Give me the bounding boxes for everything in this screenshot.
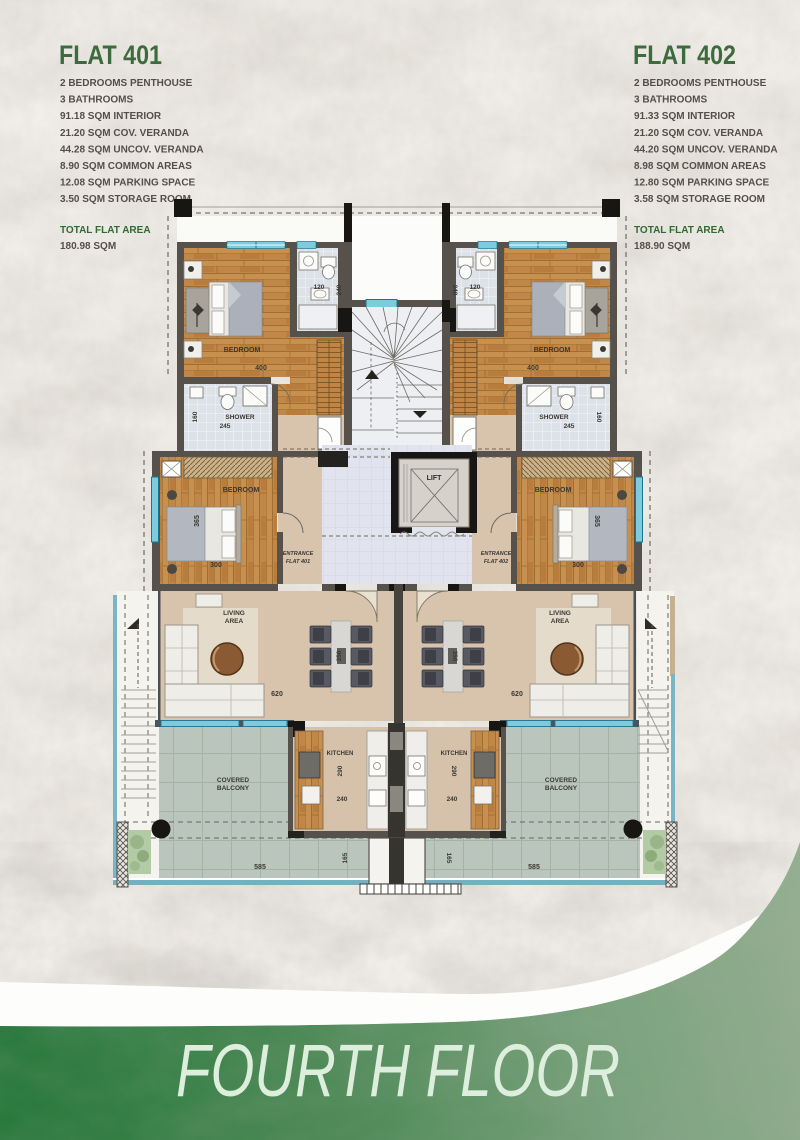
svg-text:240: 240 (451, 285, 458, 296)
svg-text:FLAT 402: FLAT 402 (633, 40, 736, 70)
svg-text:160: 160 (192, 411, 199, 422)
svg-text:AREA: AREA (225, 618, 244, 625)
svg-text:240: 240 (337, 796, 348, 803)
svg-text:585: 585 (254, 864, 266, 871)
svg-text:188.90 SQM: 188.90 SQM (634, 241, 690, 252)
svg-text:COVERED: COVERED (545, 777, 577, 784)
svg-text:245: 245 (564, 423, 575, 430)
svg-text:FLAT 401: FLAT 401 (59, 40, 162, 70)
svg-text:120: 120 (470, 284, 481, 291)
svg-text:AREA: AREA (551, 618, 570, 625)
svg-text:3.58 SQM STORAGE ROOM: 3.58 SQM STORAGE ROOM (634, 194, 765, 205)
svg-text:KITCHEN: KITCHEN (327, 751, 354, 757)
svg-text:21.20 SQM COV. VERANDA: 21.20 SQM COV. VERANDA (634, 128, 763, 139)
svg-text:BEDROOM: BEDROOM (223, 487, 260, 494)
svg-text:8.98 SQM COMMON AREAS: 8.98 SQM COMMON AREAS (634, 161, 766, 172)
svg-text:COVERED: COVERED (217, 777, 249, 784)
svg-text:300: 300 (572, 562, 584, 569)
svg-text:LIVING: LIVING (223, 610, 245, 617)
svg-text:TOTAL FLAT AREA: TOTAL FLAT AREA (634, 225, 725, 236)
svg-text:365: 365 (194, 515, 201, 527)
svg-text:BEDROOM: BEDROOM (224, 347, 261, 354)
svg-text:8.90 SQM COMMON AREAS: 8.90 SQM COMMON AREAS (60, 161, 192, 172)
svg-text:2 BEDROOMS PENTHOUSE: 2 BEDROOMS PENTHOUSE (634, 78, 767, 89)
svg-text:44.20 SQM UNCOV. VERANDA: 44.20 SQM UNCOV. VERANDA (634, 144, 778, 155)
svg-text:365: 365 (593, 515, 600, 527)
svg-text:KITCHEN: KITCHEN (441, 751, 468, 757)
svg-text:BALCONY: BALCONY (217, 785, 250, 792)
svg-text:245: 245 (220, 423, 231, 430)
svg-text:240: 240 (336, 284, 343, 295)
svg-text:620: 620 (511, 691, 523, 698)
svg-text:21.20 SQM COV. VERANDA: 21.20 SQM COV. VERANDA (60, 128, 189, 139)
svg-text:BEDROOM: BEDROOM (534, 347, 571, 354)
svg-text:91.18 SQM INTERIOR: 91.18 SQM INTERIOR (60, 111, 162, 122)
svg-text:160: 160 (595, 412, 602, 423)
svg-text:3.50 SQM STORAGE ROOM: 3.50 SQM STORAGE ROOM (60, 194, 191, 205)
svg-text:240: 240 (447, 796, 458, 803)
svg-text:44.28 SQM UNCOV. VERANDA: 44.28 SQM UNCOV. VERANDA (60, 144, 204, 155)
svg-text:3 BATHROOMS: 3 BATHROOMS (634, 95, 707, 106)
svg-text:91.33 SQM INTERIOR: 91.33 SQM INTERIOR (634, 111, 736, 122)
svg-text:120: 120 (314, 284, 325, 291)
svg-text:ENTRANCE: ENTRANCE (283, 551, 314, 557)
svg-text:SHOWER: SHOWER (539, 414, 569, 421)
svg-text:12.80 SQM PARKING SPACE: 12.80 SQM PARKING SPACE (634, 178, 770, 189)
svg-text:BALCONY: BALCONY (545, 785, 578, 792)
svg-text:400: 400 (255, 365, 267, 372)
svg-text:12.08 SQM PARKING SPACE: 12.08 SQM PARKING SPACE (60, 178, 196, 189)
svg-text:FLAT 401: FLAT 401 (286, 559, 310, 565)
svg-text:LIFT: LIFT (427, 475, 442, 482)
svg-text:165: 165 (445, 853, 452, 864)
svg-text:TOTAL FLAT AREA: TOTAL FLAT AREA (60, 225, 151, 236)
svg-text:ENTRANCE: ENTRANCE (481, 551, 512, 557)
svg-text:2 BEDROOMS PENTHOUSE: 2 BEDROOMS PENTHOUSE (60, 78, 193, 89)
svg-text:350: 350 (451, 651, 458, 662)
svg-text:300: 300 (210, 562, 222, 569)
svg-text:FLAT 402: FLAT 402 (484, 559, 508, 565)
svg-text:180.98 SQM: 180.98 SQM (60, 241, 116, 252)
svg-text:290: 290 (337, 765, 344, 776)
svg-text:3 BATHROOMS: 3 BATHROOMS (60, 95, 133, 106)
svg-text:350: 350 (336, 650, 343, 661)
svg-text:585: 585 (528, 864, 540, 871)
svg-text:FOURTH FLOOR: FOURTH FLOOR (176, 1029, 620, 1112)
svg-text:290: 290 (450, 766, 457, 777)
svg-text:SHOWER: SHOWER (225, 414, 255, 421)
svg-text:LIVING: LIVING (549, 610, 571, 617)
svg-text:620: 620 (271, 691, 283, 698)
svg-text:400: 400 (527, 365, 539, 372)
svg-text:165: 165 (342, 852, 349, 863)
svg-text:BEDROOM: BEDROOM (535, 487, 572, 494)
